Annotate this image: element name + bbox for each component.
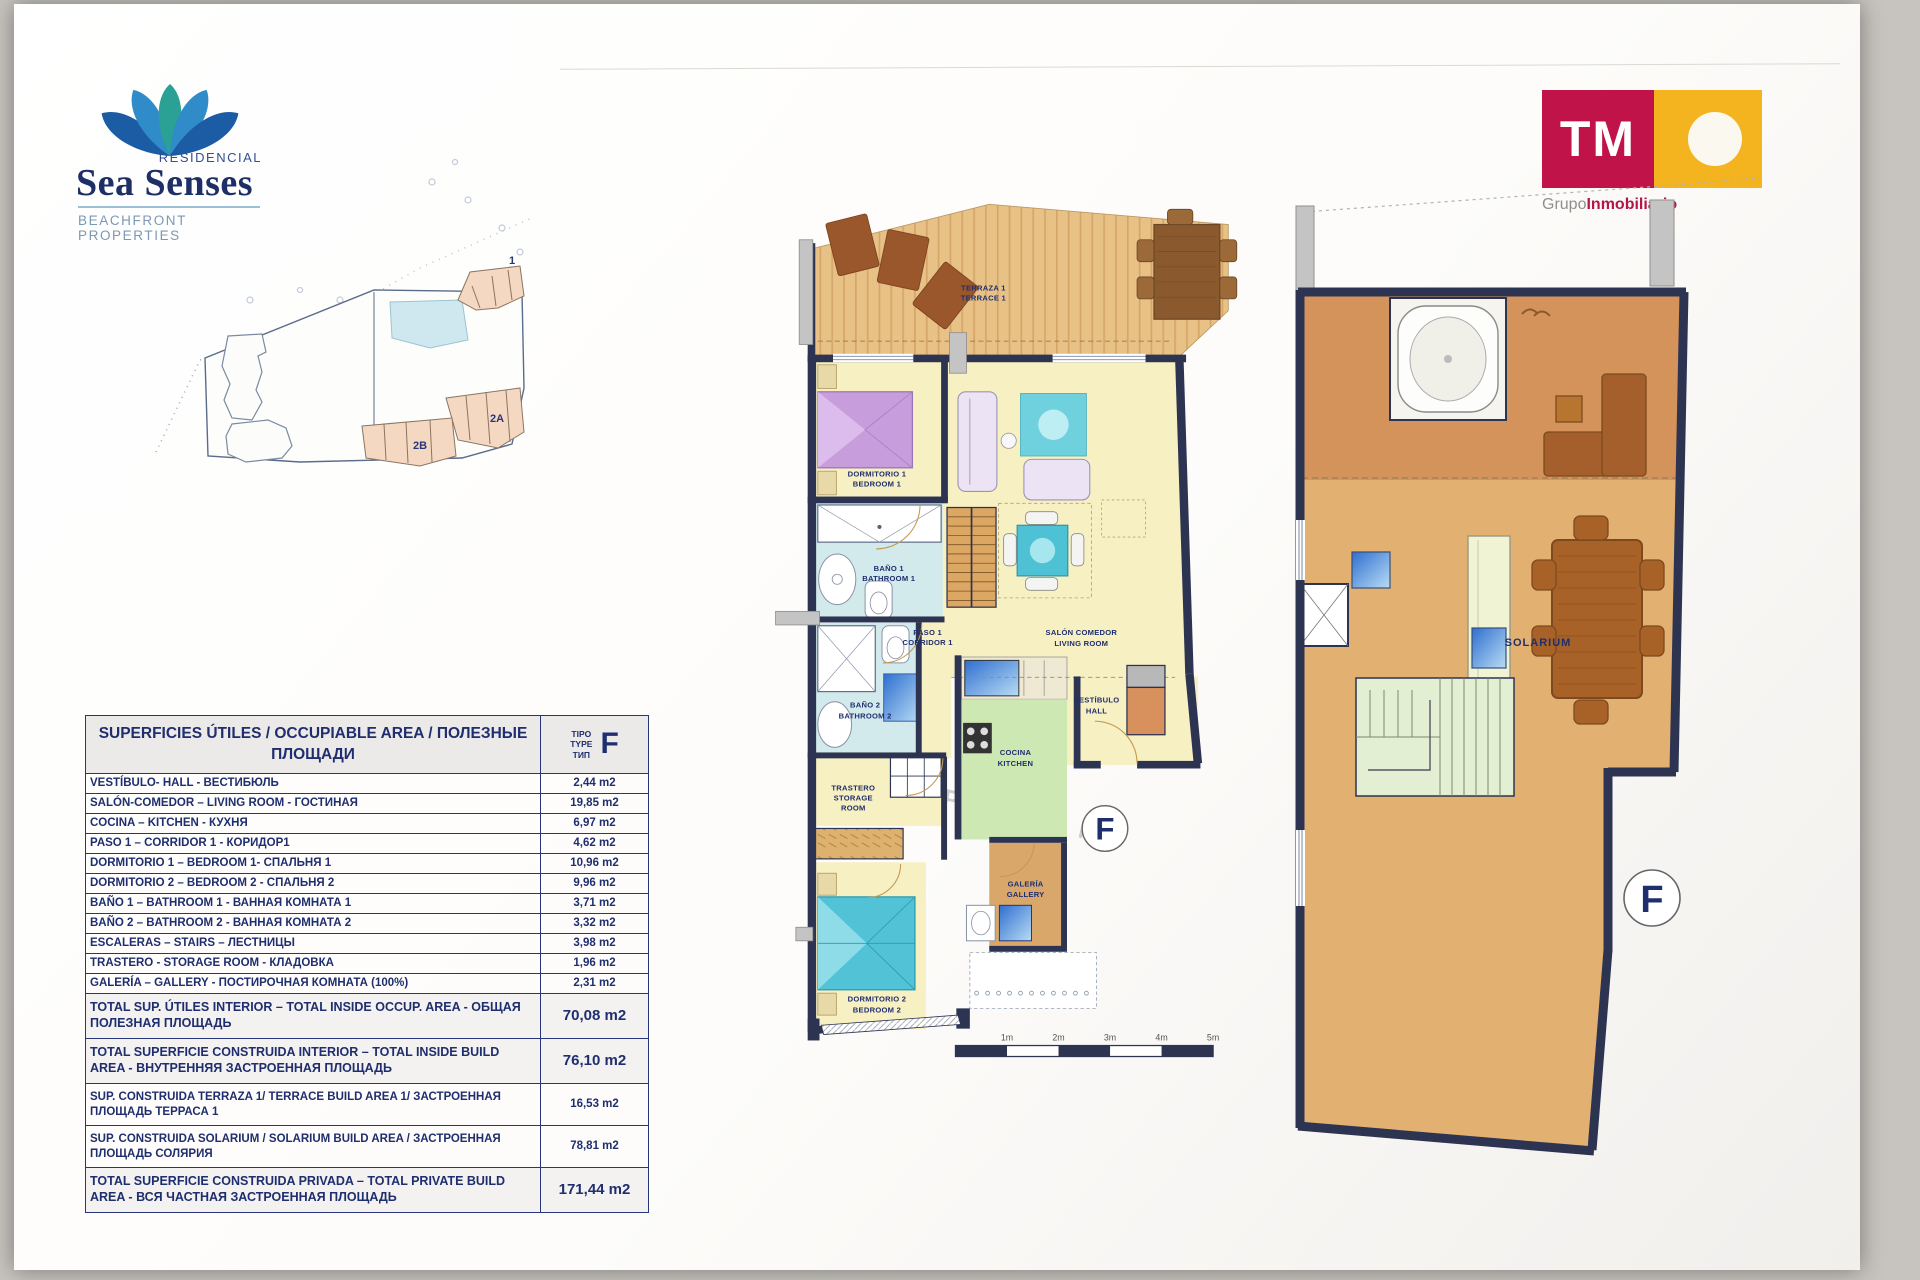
area-row-label: DORMITORIO 1 – BEDROOM 1- СПАЛЬНЯ 1 <box>86 854 541 874</box>
site-pool <box>390 300 468 348</box>
area-row-label: BAÑO 2 – BATHROOM 2 - ВАННАЯ КОМНАТА 2 <box>86 914 541 934</box>
label-bath1-2: BATHROOM 1 <box>862 574 916 583</box>
gallery-washer <box>966 905 1031 940</box>
roof-outline <box>1304 178 1756 288</box>
area-row-value: 171,44 m2 <box>541 1168 649 1213</box>
skylight <box>1300 584 1348 646</box>
area-row-label: SUP. CONSTRUIDA TERRAZA 1/ TERRACE BUILD… <box>86 1084 541 1126</box>
type-letter: F <box>600 724 618 765</box>
label-storage-2: STORAGE <box>834 794 873 803</box>
area-row-label: BAÑO 1 – BATHROOM 1 - ВАННАЯ КОМНАТА 1 <box>86 894 541 914</box>
label-solarium: SOLARIUM <box>1505 637 1572 649</box>
label-corridor-2: CORRIDOR 1 <box>903 638 954 647</box>
label-kitchen-1: COCINA <box>1000 748 1032 757</box>
label-hall-2: HALL <box>1086 707 1107 716</box>
table-row-total: TOTAL SUPERFICIE CONSTRUIDA PRIVADA – TO… <box>86 1168 649 1213</box>
label-gallery-1: GALERÍA <box>1008 880 1044 889</box>
area-table: SUPERFICIES ÚTILES / OCCUPIABLE AREA / П… <box>85 715 649 1213</box>
area-row-value: 78,81 m2 <box>541 1126 649 1168</box>
area-row-label: ESCALERAS – STAIRS – ЛЕСТНИЦЫ <box>86 934 541 954</box>
type-header: TIPO TYPE ТИП F <box>545 724 644 765</box>
area-row-value: 76,10 m2 <box>541 1039 649 1084</box>
label-bedroom1-1: DORMITORIO 1 <box>848 469 907 478</box>
area-row-value: 19,85 m2 <box>541 794 649 814</box>
area-row-label: TOTAL SUPERFICIE CONSTRUIDA PRIVADA – TO… <box>86 1168 541 1213</box>
scale-4m: 4m <box>1155 1032 1167 1042</box>
hall-closet <box>1127 665 1165 734</box>
label-bedroom1-2: BEDROOM 1 <box>853 479 902 488</box>
floor-plan-apartment: PASEO M <box>740 195 1285 1255</box>
drying-area <box>970 953 1097 1009</box>
table-row: TRASTERO - STORAGE ROOM - КЛАДОВКА1,96 m… <box>86 954 649 974</box>
scale-2m: 2m <box>1052 1032 1064 1042</box>
area-row-label: VESTÍBULO- HALL - ВЕСТИБЮЛЬ <box>86 774 541 794</box>
floor-plan-solarium: SOLARIUM F <box>1290 170 1770 1170</box>
label-terrace-1: TERRAZA 1 <box>961 283 1006 292</box>
site-building-2a <box>446 388 524 448</box>
kitchen-hob <box>963 723 992 753</box>
site-block-outline-a <box>222 334 266 420</box>
label-terrace-2: TERRACE 1 <box>961 294 1007 303</box>
site-plan: 1 2A 2B <box>150 140 530 470</box>
wardrobe <box>815 828 903 858</box>
jacuzzi <box>1390 298 1506 420</box>
site-label-1: 1 <box>509 255 515 267</box>
table-row: VESTÍBULO- HALL - ВЕСТИБЮЛЬ2,44 m2 <box>86 774 649 794</box>
label-bedroom2-2: BEDROOM 2 <box>853 1006 901 1015</box>
label-bath2-1: BAÑO 2 <box>850 701 880 710</box>
storage-shelf <box>890 755 941 797</box>
table-row: SUP. CONSTRUIDA TERRAZA 1/ TERRACE BUILD… <box>86 1084 649 1126</box>
table-row: BAÑO 2 – BATHROOM 2 - ВАННАЯ КОМНАТА 23,… <box>86 914 649 934</box>
scale-bar: 1m 2m 3m 4m 5m <box>955 1032 1219 1056</box>
scale-5m: 5m <box>1207 1032 1219 1042</box>
solarium-stairwell <box>1356 678 1514 796</box>
area-row-label: COCINA – KITCHEN - КУХНЯ <box>86 814 541 834</box>
area-row-label: DORMITORIO 2 – BEDROOM 2 - СПАЛЬНЯ 2 <box>86 874 541 894</box>
table-row: SUP. CONSTRUIDA SOLARIUM / SOLARIUM BUIL… <box>86 1126 649 1168</box>
area-row-label: TOTAL SUPERFICIE CONSTRUIDA INTERIOR – T… <box>86 1039 541 1084</box>
area-row-value: 1,96 m2 <box>541 954 649 974</box>
area-table-header: SUPERFICIES ÚTILES / OCCUPIABLE AREA / П… <box>86 716 649 774</box>
label-corridor-1: PASO 1 <box>913 628 942 637</box>
table-row: PASO 1 – CORRIDOR 1 - КОРИДОР14,62 m2 <box>86 834 649 854</box>
label-bath1-1: BAÑO 1 <box>874 564 905 573</box>
area-row-value: 3,98 m2 <box>541 934 649 954</box>
label-living-1: SALÓN COMEDOR <box>1046 628 1118 637</box>
area-row-value: 4,62 m2 <box>541 834 649 854</box>
table-row: DORMITORIO 2 – BEDROOM 2 - СПАЛЬНЯ 29,96… <box>86 874 649 894</box>
tm-circle-icon <box>1688 112 1742 166</box>
label-storage-3: ROOM <box>841 804 866 813</box>
area-row-value: 2,44 m2 <box>541 774 649 794</box>
table-row: SALÓN-COMEDOR – LIVING ROOM - ГОСТИНАЯ19… <box>86 794 649 814</box>
label-hall-1: VESTÍBULO <box>1074 696 1120 705</box>
area-row-label: GALERÍA – GALLERY - ПОСТИРОЧНАЯ КОМНАТА … <box>86 974 541 994</box>
kitchen-sink <box>965 660 1019 695</box>
stairs <box>947 508 996 608</box>
area-table-title: SUPERFICIES ÚTILES / OCCUPIABLE AREA / П… <box>86 716 541 774</box>
label-kitchen-2: KITCHEN <box>998 759 1034 768</box>
solarium-sink-left <box>1352 552 1390 588</box>
area-row-value: 3,32 m2 <box>541 914 649 934</box>
table-row: GALERÍA – GALLERY - ПОСТИРОЧНАЯ КОМНАТА … <box>86 974 649 994</box>
svg-text:F: F <box>1640 879 1663 921</box>
area-row-label: PASO 1 – CORRIDOR 1 - КОРИДОР1 <box>86 834 541 854</box>
label-storage-1: TRASTERO <box>831 783 875 792</box>
label-bath2-2: BATHROOM 2 <box>839 712 892 721</box>
table-row-total: TOTAL SUPERFICIE CONSTRUIDA INTERIOR – T… <box>86 1039 649 1084</box>
area-row-label: TOTAL SUP. ÚTILES INTERIOR – TOTAL INSID… <box>86 994 541 1039</box>
area-row-label: TRASTERO - STORAGE ROOM - КЛАДОВКА <box>86 954 541 974</box>
site-building-2b <box>362 418 456 466</box>
area-row-value: 2,31 m2 <box>541 974 649 994</box>
svg-text:F: F <box>1095 811 1114 846</box>
label-bedroom2-1: DORMITORIO 2 <box>848 995 907 1004</box>
area-row-value: 10,96 m2 <box>541 854 649 874</box>
pillars-right <box>1296 200 1674 292</box>
area-row-value: 3,71 m2 <box>541 894 649 914</box>
type-badge-left: F <box>1082 806 1128 852</box>
tm-letters: TM <box>1560 110 1636 168</box>
area-row-value: 6,97 m2 <box>541 814 649 834</box>
table-row: COCINA – KITCHEN - КУХНЯ6,97 m2 <box>86 814 649 834</box>
site-block-outline-b <box>226 420 292 462</box>
area-row-value: 16,53 m2 <box>541 1084 649 1126</box>
table-row: DORMITORIO 1 – BEDROOM 1- СПАЛЬНЯ 110,96… <box>86 854 649 874</box>
area-row-label: SUP. CONSTRUIDA SOLARIUM / SOLARIUM BUIL… <box>86 1126 541 1168</box>
label-gallery-2: GALLERY <box>1007 890 1045 899</box>
area-row-value: 9,96 m2 <box>541 874 649 894</box>
table-row: BAÑO 1 – BATHROOM 1 - ВАННАЯ КОМНАТА 13,… <box>86 894 649 914</box>
site-label-2b: 2B <box>413 440 427 452</box>
type-badge-right: F <box>1624 870 1680 926</box>
table-row-total: TOTAL SUP. ÚTILES INTERIOR – TOTAL INSID… <box>86 994 649 1039</box>
label-living-2: LIVING ROOM <box>1054 639 1108 648</box>
site-label-2a: 2A <box>490 413 504 425</box>
table-row: ESCALERAS – STAIRS – ЛЕСТНИЦЫ3,98 m2 <box>86 934 649 954</box>
area-row-label: SALÓN-COMEDOR – LIVING ROOM - ГОСТИНАЯ <box>86 794 541 814</box>
scale-3m: 3m <box>1104 1032 1116 1042</box>
area-row-value: 70,08 m2 <box>541 994 649 1039</box>
scale-1m: 1m <box>1001 1032 1013 1042</box>
